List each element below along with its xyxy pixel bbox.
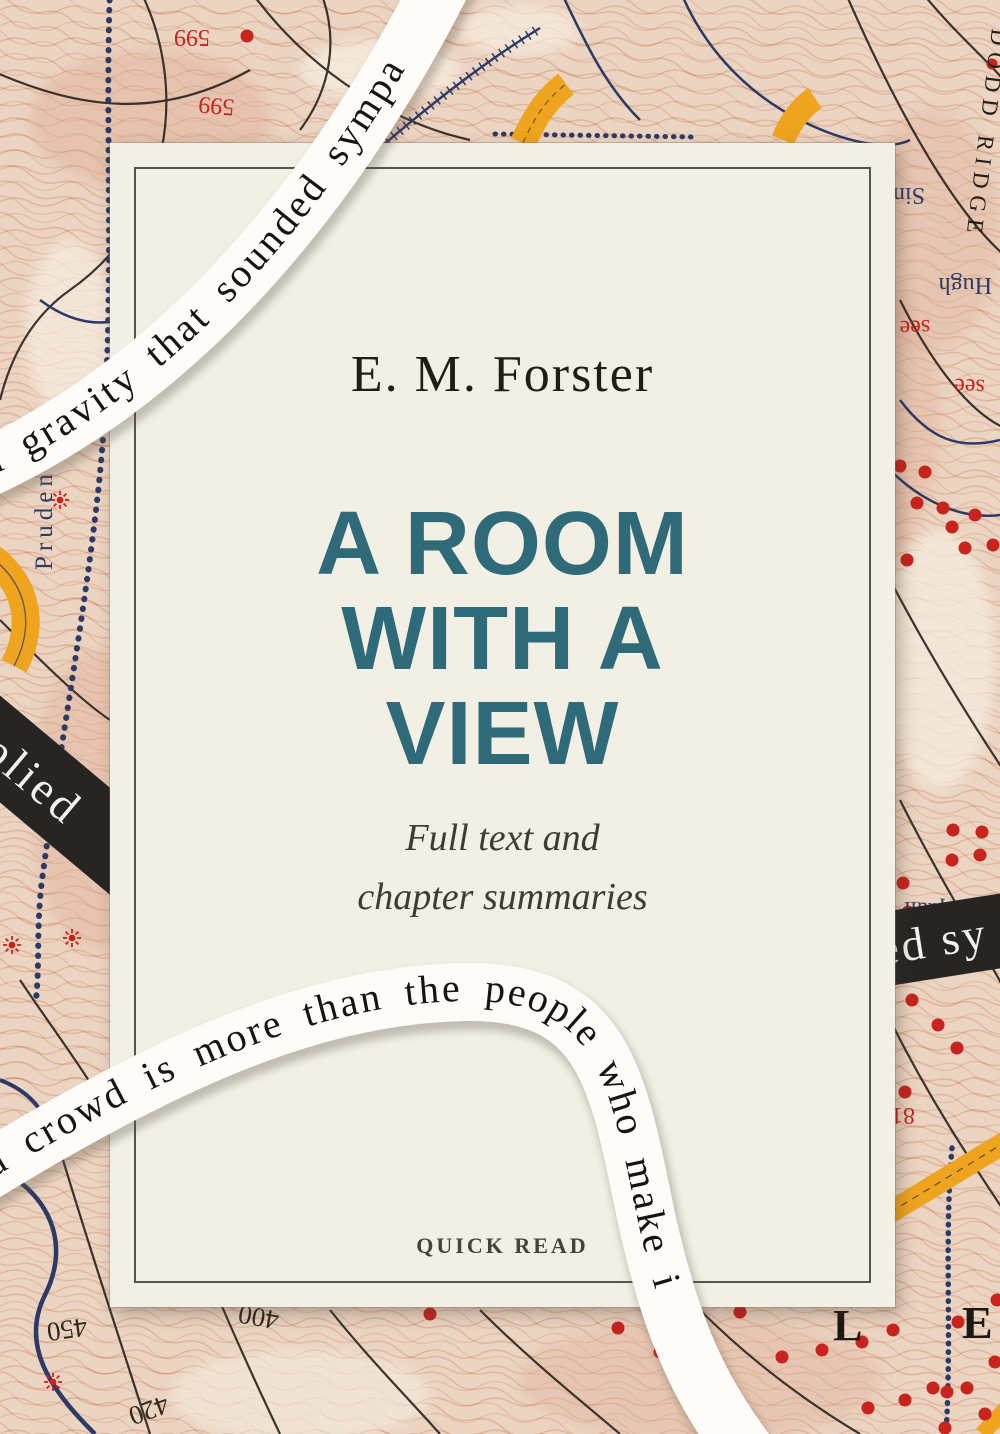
quote-ribbons: a gravity that sounded sympa a crowd is …	[0, 0, 1000, 1434]
ribbon-top-quote: a gravity that sounded sympa	[0, 48, 415, 485]
book-cover: 599 599 see see 811 Sing Hugh Squair Pru…	[0, 0, 1000, 1434]
